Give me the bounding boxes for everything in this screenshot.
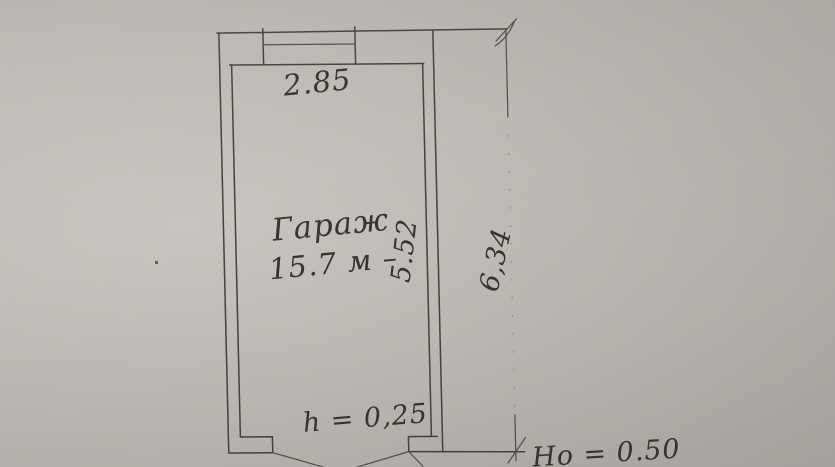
inner-length-dimension-label: 5.52 — [385, 217, 423, 285]
gate-height-label: Но = 0.50 — [530, 434, 682, 467]
ramp-diagonal-right-inner — [357, 452, 409, 467]
paper-speck — [155, 261, 158, 264]
width-dimension-label: 2.85 — [280, 62, 353, 102]
overall-length-dimension-label: 6,34 — [474, 225, 518, 295]
handwritten-labels: 2.85 Гараж 15.7 м – 5.52 6,34 h = 0,25 Н… — [263, 60, 682, 467]
ramp-diagonal-right-outer — [409, 452, 423, 467]
outer-wall-right-line — [433, 30, 443, 451]
threshold-height-label: h = 0,25 — [302, 398, 430, 439]
top-opening-right-line — [355, 27, 356, 64]
dimension-tick-top-hook — [495, 21, 516, 46]
outer-wall-top-line — [217, 29, 507, 33]
outer-walls — [217, 29, 525, 454]
outer-wall-left-line — [219, 33, 229, 453]
ground-line-bottom-right — [409, 451, 525, 453]
top-opening-middle-line — [263, 44, 355, 45]
inner-wall-right-line — [423, 64, 432, 437]
photographed-paper-sheet: 2.85 Гараж 15.7 м – 5.52 6,34 h = 0,25 Н… — [0, 0, 835, 467]
gate-jamb-left — [240, 437, 272, 453]
dimension-line-upper-segment — [506, 29, 508, 117]
ramp-diagonal-left — [273, 452, 324, 467]
inner-wall-left-line — [232, 65, 241, 437]
entrance-ramp-lines — [273, 452, 423, 467]
gate-jamb-right — [408, 436, 437, 451]
top-opening-left-line — [263, 29, 264, 65]
garage-floorplan-drawing: 2.85 Гараж 15.7 м – 5.52 6,34 h = 0,25 Н… — [0, 0, 835, 467]
dimension-tick-bottom — [507, 438, 526, 463]
plan-linework: 2.85 Гараж 15.7 м – 5.52 6,34 h = 0,25 Н… — [217, 18, 682, 467]
dimension-line-lower-segment — [515, 415, 516, 461]
